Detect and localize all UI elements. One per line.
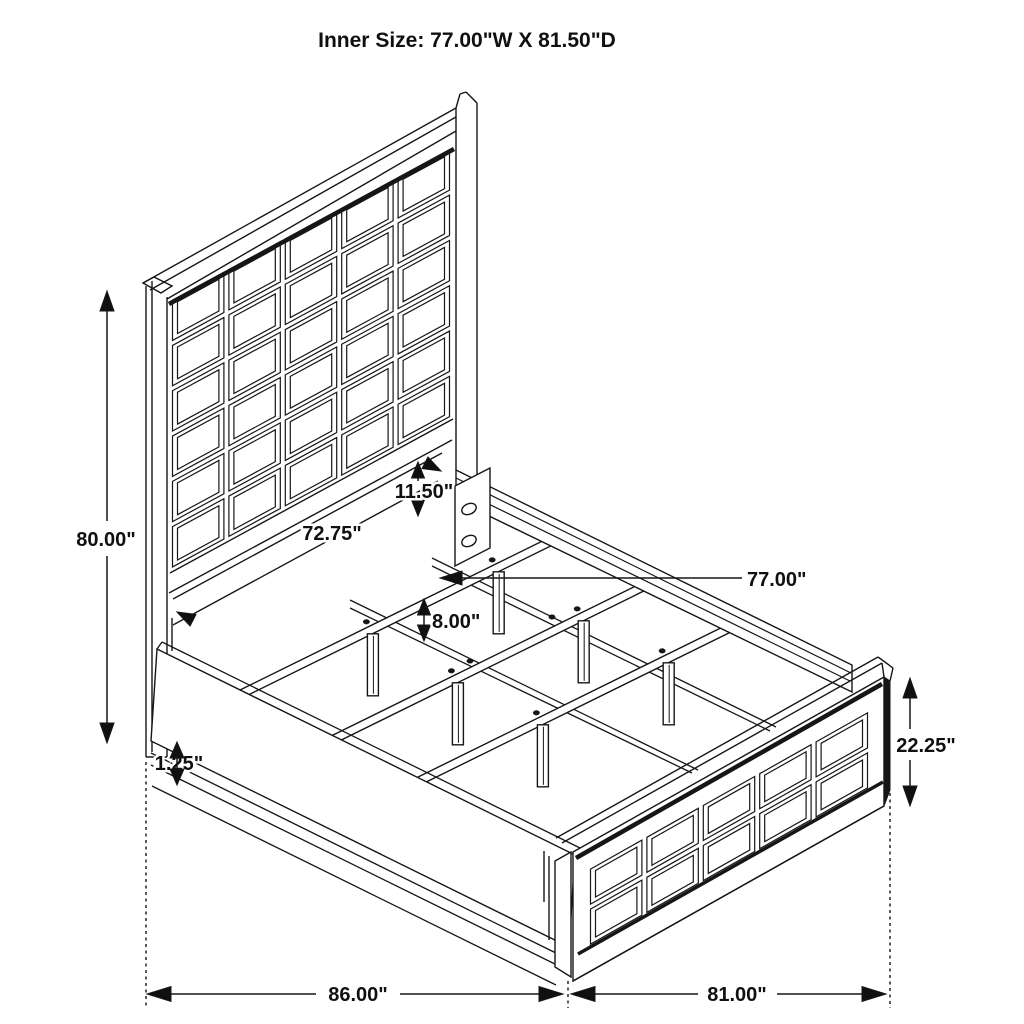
dim-headboard-height: 80.00" xyxy=(76,529,136,551)
bed-line-drawing: Inner Size: 77.00"W X 81.50"D 80.00" 72.… xyxy=(0,0,1024,1024)
diagram-title: Inner Size: 77.00"W X 81.50"D xyxy=(318,29,616,52)
dim-side-rail-height: 11.50" xyxy=(395,481,453,503)
dim-inner-width: 77.00" xyxy=(747,569,807,591)
side-rail-left xyxy=(151,642,580,985)
support-stringers xyxy=(350,558,776,773)
dim-headboard-inner-width: 72.75" xyxy=(302,523,362,545)
dim-overall-length: 86.00" xyxy=(328,984,388,1006)
rail-bracket xyxy=(455,468,490,566)
bed-dimension-diagram: Inner Size: 77.00"W X 81.50"D 80.00" 72.… xyxy=(0,0,1024,1024)
dim-footboard-height: 22.25" xyxy=(896,735,956,757)
dim-slat-support-height: 8.00" xyxy=(432,611,480,633)
dim-overall-width: 81.00" xyxy=(707,984,767,1006)
